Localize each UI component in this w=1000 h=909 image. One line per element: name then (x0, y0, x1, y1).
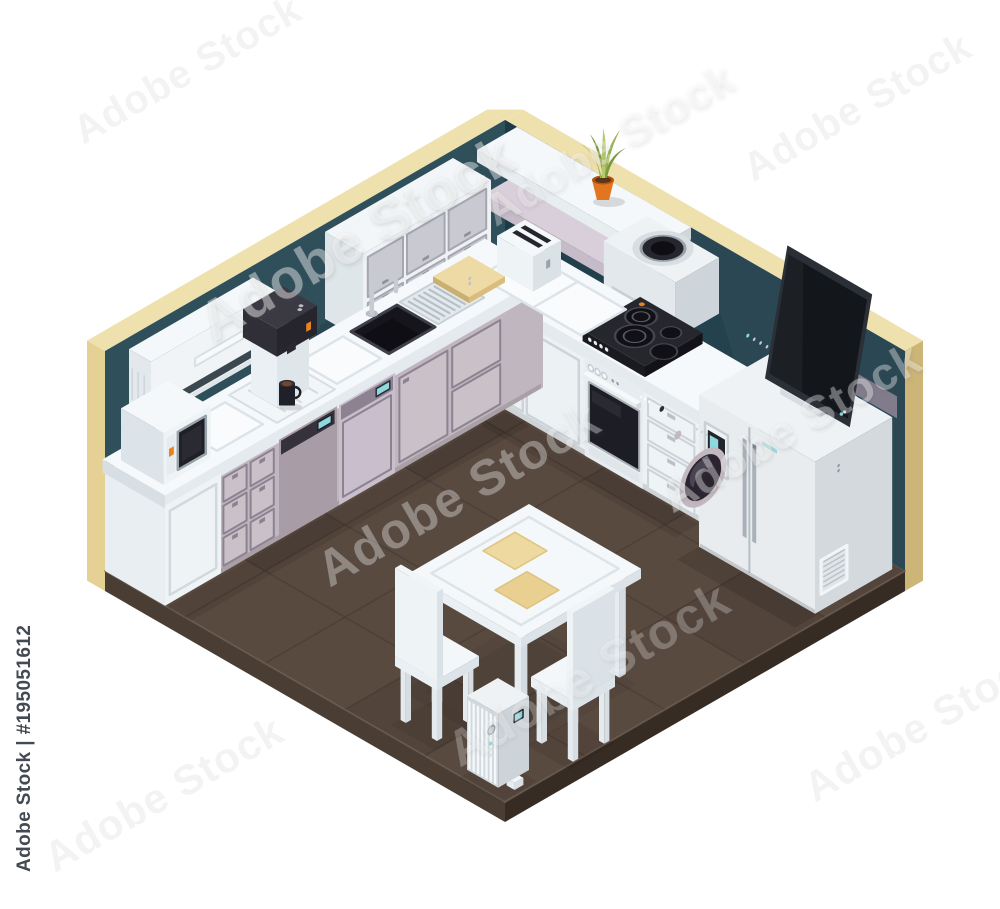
kitchen-illustration (0, 0, 1000, 909)
stock-image: Adobe Stock Adobe Stock Adobe Stock Adob… (0, 0, 1000, 909)
adobe-stock-watermark-id: Adobe Stock | #195051612 (14, 625, 36, 872)
oil-heater (467, 678, 529, 790)
kitchen-scene-svg (0, 0, 1000, 909)
